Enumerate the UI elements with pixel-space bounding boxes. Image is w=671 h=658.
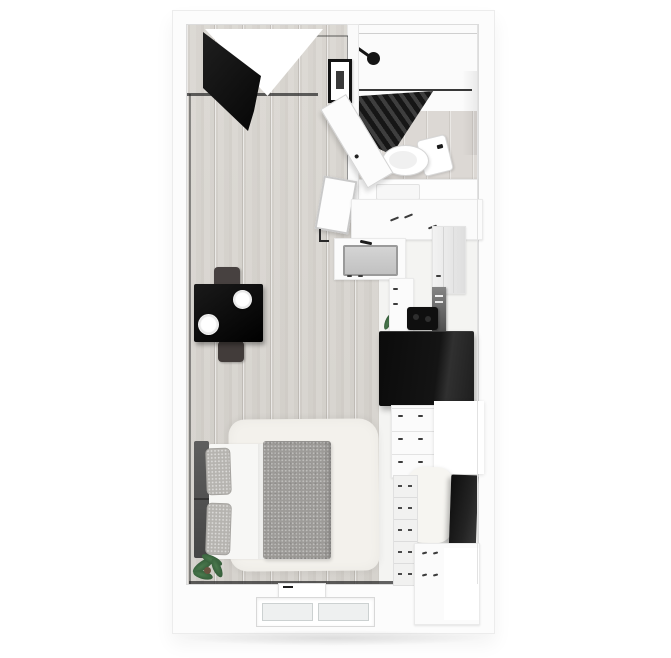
cabinet-handle <box>433 551 438 554</box>
tv-panel <box>449 475 479 551</box>
cooktop <box>407 307 438 330</box>
refrigerator <box>379 331 474 406</box>
drawer-handle <box>418 438 423 440</box>
drawer-handle <box>398 438 403 440</box>
shower-curtain-rod <box>358 89 472 91</box>
cabinet-panel-line <box>453 227 454 293</box>
bottom-cabinet-block <box>414 543 480 625</box>
kitchen-sink-cabinet <box>334 238 406 280</box>
window-pane <box>318 603 369 621</box>
bathroom-right-wall-shade <box>462 71 478 155</box>
plant-pot <box>204 567 211 574</box>
plate <box>198 314 219 335</box>
apartment-outer-walls <box>172 10 495 634</box>
door-handle <box>354 154 359 159</box>
headboard-seam <box>194 498 209 500</box>
cabinet-handle <box>358 275 363 277</box>
tall-cabinet-column <box>432 226 466 294</box>
plate <box>233 290 252 309</box>
cabinet-handle <box>390 216 399 221</box>
kitchen-sink-basin <box>343 245 398 276</box>
dining-chair-bottom <box>218 341 244 362</box>
cabinet-handle <box>422 551 427 554</box>
bed-pillow <box>205 503 232 556</box>
cabinet-panel-line <box>443 227 444 293</box>
toilet-seat <box>389 151 417 169</box>
shower-glass-edge <box>358 33 478 34</box>
wall-art-photo <box>336 71 344 89</box>
drawer-handle <box>418 461 423 463</box>
floorplan-render <box>0 0 671 658</box>
cabinet-handle <box>347 275 352 277</box>
wall-corner-trim <box>319 229 329 242</box>
wall-heater <box>278 583 326 598</box>
cabinet-handle <box>404 213 413 218</box>
cabinet-handle <box>393 288 398 290</box>
window-pane <box>262 603 313 621</box>
cabinet-handle <box>433 573 438 576</box>
bed-duvet <box>263 441 331 559</box>
cabinet-handle <box>393 303 398 305</box>
cabinet-handle <box>436 275 441 277</box>
plan-ground-shadow <box>180 630 486 646</box>
oven-handle <box>435 295 443 297</box>
bottom-cabinet-bright <box>444 548 479 620</box>
drawer-handle <box>398 461 403 463</box>
left-wall-baseboard <box>189 94 191 584</box>
cabinet-handle <box>422 573 427 576</box>
toilet-flush-button <box>437 144 444 149</box>
vanity-sink <box>376 184 420 200</box>
right-wall-inner-edge <box>477 25 478 584</box>
window <box>256 597 375 627</box>
heater-vent <box>283 586 293 588</box>
bed-pillow <box>205 448 232 496</box>
drawer-handle <box>398 415 403 417</box>
drawer-handle <box>418 415 423 417</box>
burner <box>413 314 419 320</box>
oven-handle <box>435 301 443 303</box>
burner <box>425 316 431 322</box>
